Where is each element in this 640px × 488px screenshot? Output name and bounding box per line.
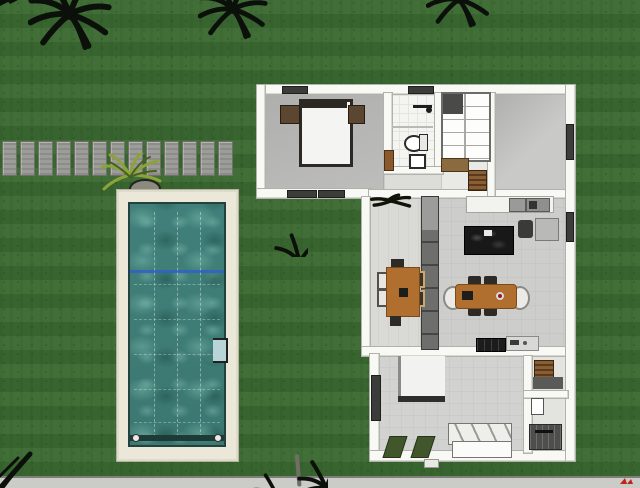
bed-3 xyxy=(398,356,445,402)
closet-divider xyxy=(464,94,466,160)
window-bedroom-south-1 xyxy=(287,190,317,198)
toilet-tank xyxy=(419,134,428,151)
shower-room-sink xyxy=(531,398,544,415)
divider-cabinet-top xyxy=(422,197,438,230)
sink-basin xyxy=(510,340,519,345)
closet-counter xyxy=(441,158,469,172)
shower-head xyxy=(426,107,432,113)
wall-bath-split xyxy=(523,390,569,399)
storage-rack-front xyxy=(452,441,512,458)
louver-window-toilet xyxy=(534,360,554,378)
kitchen-counter xyxy=(466,196,554,213)
window-east-bedroom2 xyxy=(566,124,574,160)
wall-living-south xyxy=(361,346,575,357)
nightstand-right xyxy=(348,105,365,124)
shower-drain-bar xyxy=(535,430,553,433)
window-north-bedroom xyxy=(282,86,308,94)
table-item-dark xyxy=(462,291,473,300)
shower-floor xyxy=(529,424,562,450)
window-west-bedroom3 xyxy=(371,375,381,421)
wall-west-top xyxy=(256,84,266,198)
appliance-2 xyxy=(526,198,550,212)
nightstand-left xyxy=(280,105,300,124)
bath-sink xyxy=(409,154,426,169)
louver-window-hall xyxy=(468,170,487,191)
wall-terrace-west xyxy=(361,196,371,355)
window-bedroom-south-2 xyxy=(318,190,345,198)
floorplan-render xyxy=(0,0,640,488)
stone-island xyxy=(464,226,514,255)
faucet xyxy=(523,341,527,345)
desk-chair xyxy=(518,220,533,238)
bed-headboard xyxy=(299,99,347,108)
island-chip xyxy=(484,230,492,236)
house xyxy=(0,0,640,488)
bath-shelf xyxy=(392,126,433,128)
terrace-table xyxy=(386,267,420,317)
appliance-1 xyxy=(509,198,526,212)
cooktop xyxy=(476,338,506,352)
toilet-room-floor-dark xyxy=(533,377,563,389)
entry-step xyxy=(424,459,439,468)
appliance-door xyxy=(529,201,537,209)
room-bedroom-2 xyxy=(492,92,567,192)
bed-master xyxy=(299,99,353,167)
terrace-bench-bottom xyxy=(390,316,401,326)
closet-dark-cabinet xyxy=(443,94,463,114)
terrace-table-item xyxy=(399,288,408,297)
door-bedroom xyxy=(384,150,394,171)
terrace-plant-icon xyxy=(370,190,412,212)
closet-shelves xyxy=(441,92,491,162)
desk xyxy=(535,218,559,241)
table-item-red xyxy=(496,292,504,300)
window-east-living xyxy=(566,212,574,242)
sink-counter xyxy=(506,336,539,351)
window-north-bath xyxy=(408,86,434,94)
terrace-bench-top xyxy=(391,259,404,267)
bed-3-footboard xyxy=(398,396,445,402)
dining-table xyxy=(455,284,517,309)
